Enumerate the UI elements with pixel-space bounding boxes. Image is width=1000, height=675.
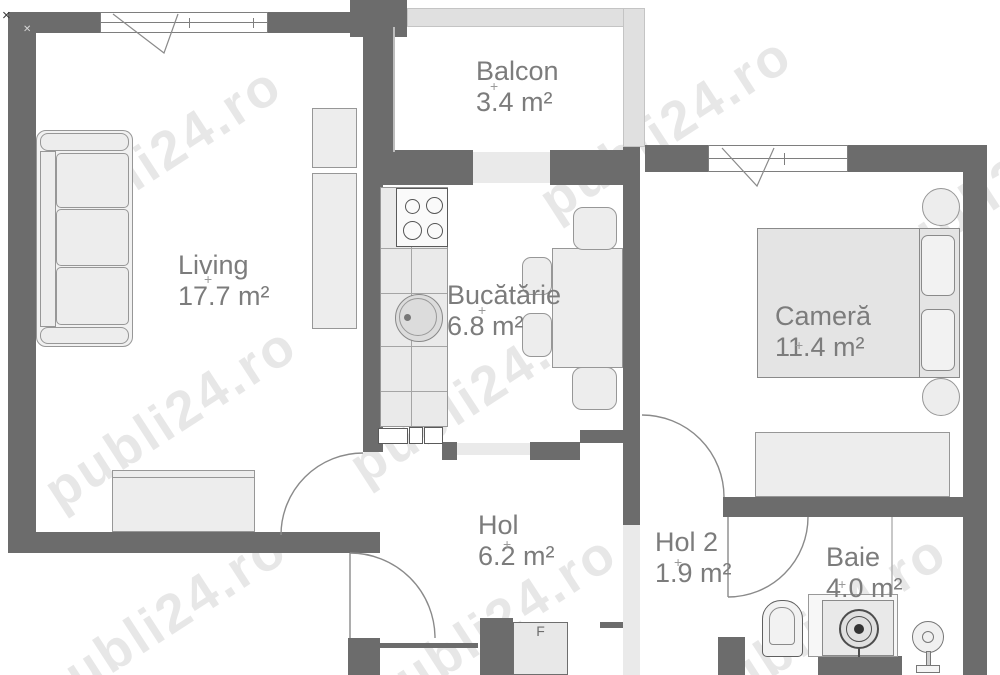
stove-burner <box>426 197 443 214</box>
nightstand <box>922 188 960 226</box>
dining-chair <box>573 207 617 250</box>
wall-bedroom-bottom <box>723 497 963 517</box>
washer-door-center <box>854 624 864 634</box>
sofa-cushion <box>56 209 129 266</box>
threshold-kitchen-hol <box>457 443 530 455</box>
counter-line <box>381 248 447 249</box>
wall-entry-stub <box>348 638 380 675</box>
sofa-armrest-bottom <box>40 327 129 344</box>
measure-cross: + <box>478 303 486 317</box>
window-divider <box>784 153 785 165</box>
room-name: Baie <box>826 542 903 573</box>
toilet-bowl <box>769 607 795 645</box>
counter-line <box>381 391 447 392</box>
closet-label: F <box>536 623 545 639</box>
room-label-bucatarie: Bucătărie 6.8 m² <box>447 280 561 342</box>
stove-burner <box>427 223 443 239</box>
wall-kitchen-balcony-right <box>550 150 623 185</box>
room-area: 6.2 m² <box>478 541 555 572</box>
tv-cabinet-line <box>113 477 254 478</box>
corner-x-small-icon: ✕ <box>23 25 31 35</box>
kitchen-cabinet-box <box>424 427 443 444</box>
sofa-cushion <box>56 267 129 325</box>
corner-x-icon: × <box>2 8 11 23</box>
wall-living-bottom <box>8 532 380 553</box>
bedroom-dresser <box>755 432 950 497</box>
counter-line <box>381 346 447 347</box>
window-mullion <box>101 22 267 23</box>
living-shelf-upper <box>312 108 357 168</box>
room-name: Hol <box>478 510 555 541</box>
wall-left <box>8 12 36 553</box>
measure-cross: + <box>204 272 212 286</box>
wall-hol2-baie-stub <box>718 637 745 675</box>
room-label-hol: Hol 6.2 m² <box>478 510 555 572</box>
washing-machine <box>822 600 894 656</box>
washer-stem <box>858 647 860 657</box>
dining-chair <box>572 367 617 410</box>
wall-top-right-of-window <box>268 12 363 33</box>
kitchen-cabinet-box <box>378 428 408 444</box>
room-label-baie: Baie 4.0 m² <box>826 542 903 604</box>
balcony-rail-right <box>623 8 645 147</box>
wall-hol-bottom-stub <box>480 618 513 675</box>
stove-burner <box>403 221 422 240</box>
room-label-hol2: Hol 2 1.9 m² <box>655 527 732 589</box>
kitchen-sink <box>395 294 443 342</box>
wall-kitchen-hol-stub-left <box>442 442 457 460</box>
room-label-balcon: Balcon 3.4 m² <box>476 56 559 118</box>
floor-plan: publi24.ro publi24.ro publi24.ro publi24… <box>0 0 1000 675</box>
threshold-kitchen-balcony <box>473 152 550 183</box>
living-window <box>100 12 268 33</box>
room-area: 11.4 m² <box>775 332 871 363</box>
balcony-edge-left <box>393 27 395 152</box>
room-name: Living <box>178 250 270 281</box>
balcony-rail-top <box>407 8 645 27</box>
toilet <box>762 600 803 657</box>
room-area: 17.7 m² <box>178 281 270 312</box>
wall-kitchen-bedroom <box>623 147 640 525</box>
dining-table <box>552 248 623 368</box>
wall-hol-bottom-line <box>600 622 623 628</box>
bedroom-window <box>708 145 848 172</box>
room-area: 3.4 m² <box>476 87 559 118</box>
sofa-cushion <box>56 153 129 208</box>
room-area: 6.8 m² <box>447 311 561 342</box>
pillow <box>921 235 955 296</box>
entry-closet: F <box>513 622 568 675</box>
room-area: 1.9 m² <box>655 558 732 589</box>
wash-basin <box>912 621 944 653</box>
sink-drain <box>404 314 411 321</box>
window-divider <box>253 18 254 28</box>
wall-corner-living-balcony <box>350 0 407 37</box>
wall-washer-base <box>818 656 902 675</box>
wall-kitchen-balcony-left <box>363 150 473 185</box>
measure-cross: + <box>674 555 682 569</box>
entry-door-swing <box>350 553 435 638</box>
stove <box>396 188 448 247</box>
measure-cross: + <box>838 577 846 591</box>
pillow <box>921 309 955 371</box>
wall-kitchen-hol-stub-right <box>530 442 580 460</box>
wall-bedroom-top-left <box>645 145 708 172</box>
room-name: Bucătărie <box>447 280 561 311</box>
window-mullion <box>709 158 847 159</box>
sofa-backrest <box>40 151 56 327</box>
stove-burner <box>405 199 420 214</box>
threshold-hol-hol2 <box>623 525 640 675</box>
nightstand <box>922 378 960 416</box>
window-divider <box>189 18 190 28</box>
bed-headboard-line <box>919 229 920 377</box>
room-name: Balcon <box>476 56 559 87</box>
living-wardrobe <box>312 173 357 329</box>
measure-cross: + <box>503 537 511 551</box>
entry-door-leaf <box>378 643 478 648</box>
kitchen-cabinet-box <box>409 427 423 444</box>
wall-kitchen-hol-step <box>580 430 640 443</box>
measure-cross: + <box>795 338 803 352</box>
sofa-armrest-top <box>40 133 129 151</box>
room-label-living: Living 17.7 m² <box>178 250 270 312</box>
tv-cabinet <box>112 470 255 532</box>
watermark: publi24.ro <box>528 23 803 232</box>
room-name: Cameră <box>775 301 871 332</box>
basin-drain <box>922 631 934 643</box>
room-name: Hol 2 <box>655 527 732 558</box>
basin-foot <box>916 665 940 673</box>
bedroom-door-swing <box>642 415 724 497</box>
bathroom-door-swing <box>728 517 808 597</box>
wall-right <box>963 145 987 675</box>
measure-cross: + <box>490 79 498 93</box>
room-label-camera: Cameră 11.4 m² <box>775 301 871 363</box>
